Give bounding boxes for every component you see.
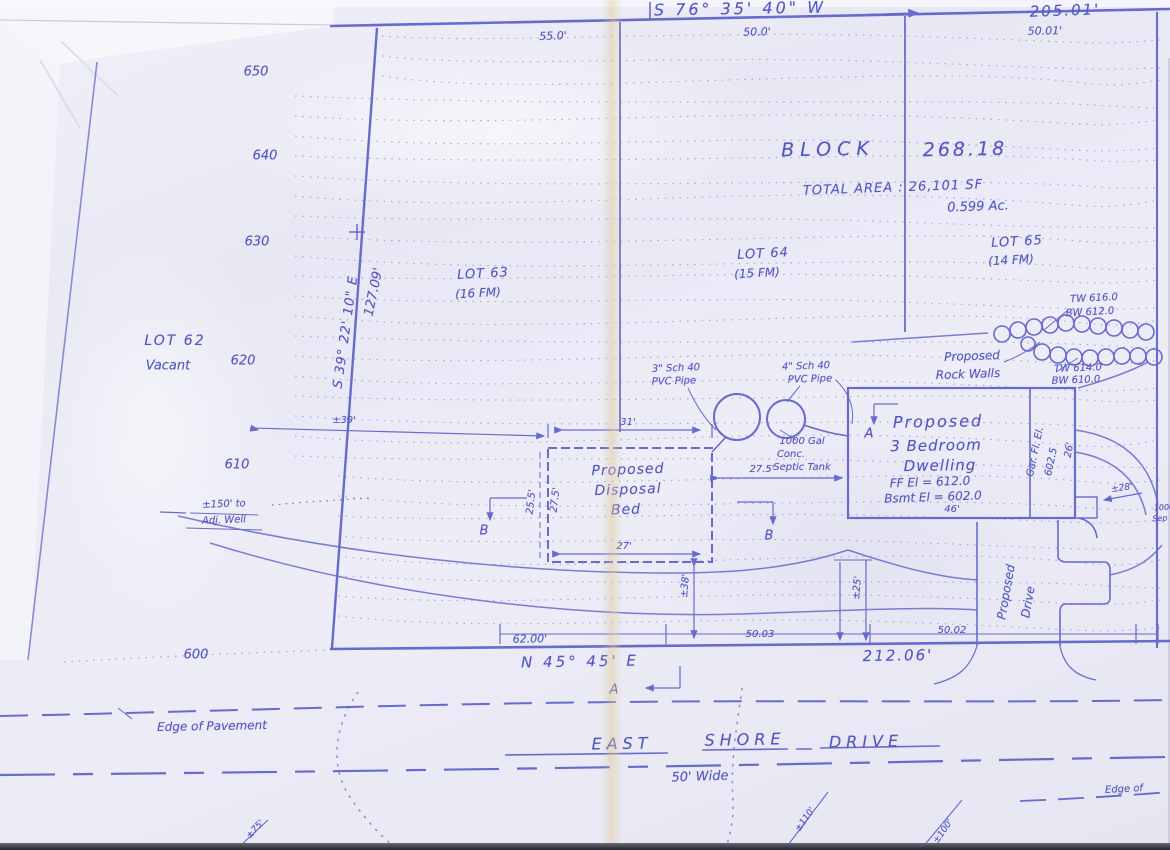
section-b-left-marker: [490, 498, 527, 520]
contour-640: 640: [253, 150, 278, 163]
dotted-traverse-left: [337, 692, 392, 845]
edge-of-pavement-line: [0, 700, 1170, 716]
septic-label-2: Conc.: [777, 450, 805, 460]
septic-tank-circle-1: [714, 394, 760, 440]
contour-630: 630: [245, 236, 270, 249]
front-width-lot63: 62.00': [513, 633, 548, 645]
contour-lines: [295, 34, 1160, 630]
dwelling-bsmt-el: Bsmt El = 602.0: [884, 489, 982, 504]
distance-front-line: 212.06': [863, 648, 934, 664]
distance-rear-line: 205.01': [1029, 2, 1100, 19]
lot65-label: LOT 65: [991, 234, 1043, 250]
dim-38: ±38': [680, 574, 692, 599]
dim-46: 46': [944, 505, 959, 515]
contour-650: 650: [244, 66, 269, 79]
section-a-top: A: [865, 428, 874, 441]
section-a-bottom-marker: [646, 666, 680, 688]
wall2-top: TW 614.0: [1054, 363, 1102, 375]
road-name-shore: SHORE: [704, 731, 785, 748]
section-b-right: B: [765, 530, 774, 543]
dim-25: ±25': [852, 576, 864, 601]
lot62-status: Vacant: [146, 360, 190, 373]
road-name-drive: DRIVE: [829, 733, 903, 750]
rear-width-lot64: 50.0': [743, 26, 771, 37]
edge-fragment-1000: 1000: [1154, 503, 1170, 512]
bearing-front-line: N 45° 45' E: [521, 653, 639, 670]
dim-39: ±39': [332, 416, 356, 426]
lot64-label: LOT 64: [737, 246, 789, 262]
pipe3-label-2: PVC Pipe: [652, 376, 697, 388]
contour-600: 600: [184, 649, 209, 662]
dim-27: 27': [616, 542, 631, 552]
section-b-left: B: [480, 525, 489, 538]
dotted-traverse-center: [726, 688, 742, 848]
scan-bottom-edge: [0, 843, 1170, 850]
road-lines: [0, 688, 1170, 848]
disposal-bed-2: Disposal: [594, 482, 662, 498]
lot65-fm: (14 FM): [988, 253, 1034, 267]
septic-label-1: 1000 Gal: [779, 437, 824, 447]
disposal-bed-1: Proposed: [591, 462, 664, 479]
lot64-fm: (15 FM): [734, 266, 780, 280]
pipe-4in: [804, 425, 848, 436]
road-name-east: EAST: [591, 735, 652, 752]
paper-edges: [0, 0, 1170, 844]
pipe4-label-1: 4" Sch 40: [782, 361, 831, 373]
dwelling-3: Dwelling: [904, 458, 977, 474]
edge-fragment-sep: Sep: [1152, 515, 1167, 524]
total-acres: 0.599 Ac.: [947, 199, 1009, 214]
rock-walls-label-1: Proposed: [944, 349, 1000, 363]
road-centerline: [0, 757, 1170, 775]
lot62-label: LOT 62: [144, 334, 205, 348]
well-distance-2: Adj. Well: [202, 515, 246, 527]
dwelling-ff-el: FF El = 612.0: [890, 475, 971, 490]
front-width-lot64: 50.03: [746, 630, 775, 640]
edge-of-pavement-right: Edge of: [1105, 784, 1143, 796]
disposal-bed-3: Bed: [611, 502, 642, 517]
section-a-bottom: A: [610, 684, 619, 697]
rear-width-lot63: 55.0': [539, 30, 567, 42]
block-word: BLOCK: [781, 140, 875, 161]
septic-label-3: Septic Tank: [773, 463, 831, 473]
septic-tank-circle-2: [767, 400, 805, 438]
dim-27-5-right: 27.5': [749, 465, 774, 475]
pipe4-label-2: PVC Pipe: [788, 374, 833, 386]
edge-of-pavement: Edge of Pavement: [157, 719, 267, 733]
bearing-rear-line: S 76° 35' 40" W: [654, 0, 826, 19]
lot63-fm: (16 FM): [455, 286, 501, 300]
wall2-bottom: BW 610.0: [1052, 375, 1101, 387]
dwelling-1: Proposed: [893, 413, 984, 431]
lot63-label: LOT 63: [457, 266, 509, 282]
plot-plan-sheet: S 76° 35' 40" W205.01'55.0'50.0'50.01'65…: [0, 0, 1170, 850]
road-width: 50' Wide: [671, 770, 728, 785]
front-width-lot65: 50.02: [938, 626, 967, 636]
block-number: 268.18: [923, 140, 1008, 160]
well-distance-1: ±150' to: [202, 499, 246, 511]
edge-of-pavement-right-line: [1020, 792, 1170, 801]
pipe-3in: [712, 437, 726, 452]
dim-31: 31': [620, 418, 635, 428]
contour-610: 610: [225, 459, 250, 472]
section-b-right-marker: [737, 502, 773, 524]
pipe3-label-1: 3" Sch 40: [652, 363, 701, 375]
dwelling-2: 3 Bedroom: [890, 438, 982, 455]
contour-620: 620: [231, 355, 256, 368]
rock-walls-label-2: Rock Walls: [936, 367, 1001, 381]
rear-width-lot65: 50.01': [1028, 25, 1063, 37]
